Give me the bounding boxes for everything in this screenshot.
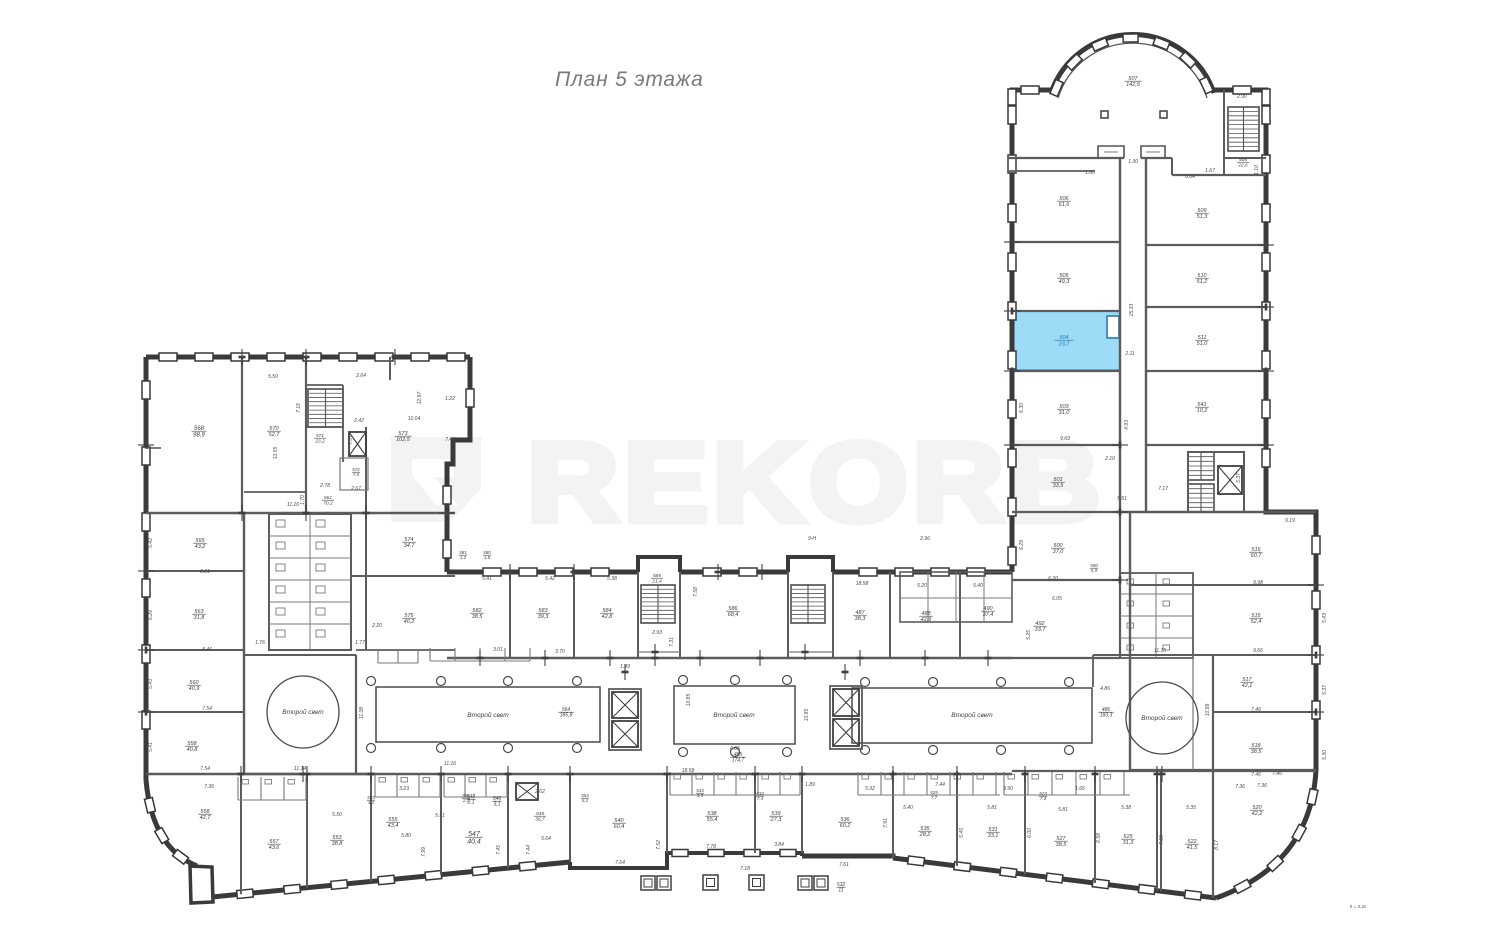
svg-text:9.69: 9.69 [1060, 436, 1070, 442]
svg-text:11: 11 [838, 888, 843, 894]
svg-text:40,9: 40,9 [189, 686, 200, 692]
svg-text:7.36: 7.36 [1257, 783, 1267, 789]
svg-text:7.91: 7.91 [883, 818, 889, 828]
svg-text:5.25: 5.25 [1026, 630, 1032, 640]
svg-text:42,8: 42,8 [602, 614, 614, 620]
svg-text:1.22: 1.22 [445, 396, 455, 402]
svg-text:38,8: 38,8 [332, 841, 344, 847]
svg-text:98,9: 98,9 [193, 433, 205, 439]
svg-text:10,2: 10,2 [1197, 408, 1208, 414]
svg-text:49,3: 49,3 [1059, 279, 1071, 285]
svg-text:7.44: 7.44 [526, 845, 532, 855]
svg-text:3,5: 3,5 [697, 793, 704, 798]
svg-text:7.16: 7.16 [296, 403, 302, 413]
svg-text:1.70: 1.70 [300, 495, 306, 505]
svg-text:27,3: 27,3 [770, 817, 783, 823]
svg-text:11.16: 11.16 [287, 502, 299, 508]
svg-text:2.62: 2.62 [534, 789, 545, 795]
svg-text:2.11: 2.11 [1124, 351, 1135, 357]
svg-text:1.49: 1.49 [620, 664, 630, 670]
svg-text:42,9: 42,9 [921, 617, 932, 623]
svg-text:38,5: 38,5 [1251, 749, 1263, 755]
svg-text:11.08: 11.08 [359, 707, 365, 719]
svg-text:33,1: 33,1 [988, 833, 999, 839]
svg-text:10.85: 10.85 [804, 709, 810, 722]
svg-text:7,7: 7,7 [931, 795, 938, 800]
svg-text:33,7: 33,7 [1035, 627, 1047, 633]
svg-text:1,8: 1,8 [484, 555, 491, 560]
svg-text:51,0: 51,0 [1197, 341, 1209, 347]
svg-text:51,2: 51,2 [1197, 279, 1208, 285]
svg-text:6.20: 6.20 [1048, 576, 1058, 582]
svg-text:5.81: 5.81 [987, 805, 997, 811]
svg-text:28,2: 28,2 [919, 832, 931, 838]
svg-text:18.58: 18.58 [856, 581, 869, 587]
svg-text:7.61: 7.61 [839, 862, 849, 868]
svg-text:1.77: 1.77 [355, 640, 365, 646]
svg-text:3.90: 3.90 [1003, 786, 1013, 792]
svg-text:42,7: 42,7 [200, 815, 212, 821]
svg-text:5.41: 5.41 [482, 576, 492, 582]
svg-text:5.50: 5.50 [332, 812, 342, 818]
svg-text:2.93: 2.93 [651, 630, 662, 636]
svg-text:7.44: 7.44 [445, 437, 455, 443]
svg-text:1.67: 1.67 [1205, 168, 1215, 174]
svg-text:6.29: 6.29 [1019, 540, 1025, 550]
svg-text:5.40: 5.40 [973, 583, 983, 589]
svg-text:31,3: 31,3 [1123, 840, 1135, 846]
svg-text:7.46: 7.46 [1251, 707, 1261, 713]
svg-text:185,8: 185,8 [560, 713, 573, 719]
svg-text:21,4: 21,4 [651, 578, 662, 584]
svg-text:5.38: 5.38 [1121, 805, 1131, 811]
svg-text:7.58: 7.58 [693, 587, 699, 597]
svg-text:1.89: 1.89 [805, 782, 815, 788]
svg-text:174,7: 174,7 [732, 758, 745, 764]
svg-text:7.54: 7.54 [200, 766, 210, 772]
svg-text:7.78: 7.78 [706, 844, 716, 850]
svg-text:6.29: 6.29 [148, 610, 154, 620]
svg-text:2.78: 2.78 [319, 483, 330, 489]
svg-text:5.43: 5.43 [148, 679, 154, 689]
svg-text:1,2: 1,2 [460, 555, 467, 560]
svg-text:9.66: 9.66 [1253, 648, 1263, 654]
svg-text:2.64: 2.64 [355, 373, 366, 379]
svg-text:39,3: 39,3 [538, 614, 550, 620]
svg-text:40,4: 40,4 [467, 839, 481, 846]
svg-text:7.17: 7.17 [1158, 486, 1168, 492]
svg-text:2.20: 2.20 [371, 623, 382, 629]
svg-text:3.01: 3.01 [493, 647, 503, 653]
svg-text:51,3: 51,3 [1197, 214, 1209, 220]
svg-text:42,2: 42,2 [1252, 811, 1263, 817]
svg-text:7.46: 7.46 [1272, 771, 1282, 777]
svg-text:18.58: 18.58 [682, 768, 695, 774]
svg-text:11.16: 11.16 [444, 761, 456, 767]
svg-text:7.45: 7.45 [496, 845, 502, 855]
svg-text:37,0: 37,0 [1053, 549, 1065, 555]
svg-text:6.05: 6.05 [1052, 596, 1062, 602]
svg-text:43,4: 43,4 [388, 823, 399, 829]
svg-text:41,5: 41,5 [1187, 845, 1199, 851]
svg-text:2.96: 2.96 [919, 536, 930, 542]
svg-text:3,1: 3,1 [494, 802, 501, 808]
svg-text:6.64: 6.64 [1185, 174, 1195, 180]
svg-text:3.84: 3.84 [774, 842, 784, 848]
svg-text:7.64: 7.64 [615, 860, 625, 866]
svg-text:9-Н: 9-Н [808, 536, 816, 542]
svg-text:61,6: 61,6 [1059, 202, 1071, 208]
svg-text:37,4: 37,4 [983, 612, 994, 618]
svg-text:36,7: 36,7 [535, 816, 545, 822]
svg-text:5.30: 5.30 [1322, 750, 1328, 760]
svg-text:REKORB: REKORB [527, 420, 1105, 545]
svg-text:23,2: 23,2 [314, 438, 325, 444]
svg-text:Второй свет: Второй свет [1141, 714, 1183, 722]
svg-text:183,3: 183,3 [1100, 713, 1113, 719]
svg-text:5.38: 5.38 [607, 576, 617, 582]
svg-text:7.52: 7.52 [656, 840, 662, 850]
svg-text:31,8: 31,8 [194, 615, 206, 621]
svg-text:22,6: 22,6 [1237, 162, 1248, 168]
svg-text:2.10: 2.10 [1104, 456, 1115, 462]
svg-text:1.66: 1.66 [1075, 786, 1085, 792]
svg-text:11.14: 11.14 [294, 766, 306, 772]
svg-text:70,2: 70,2 [323, 500, 333, 506]
svg-text:5.37: 5.37 [1322, 685, 1328, 695]
svg-text:142,5: 142,5 [1126, 82, 1141, 88]
svg-text:2.90: 2.90 [1236, 94, 1247, 100]
svg-text:12.97: 12.97 [417, 392, 423, 405]
svg-text:2,1: 2,1 [462, 798, 470, 803]
svg-text:7,3: 7,3 [1040, 796, 1047, 801]
svg-text:25.33: 25.33 [1129, 304, 1135, 318]
svg-text:5.50: 5.50 [268, 374, 278, 380]
svg-text:7.18: 7.18 [740, 866, 750, 872]
svg-text:43,2: 43,2 [195, 544, 206, 550]
svg-text:52,4: 52,4 [1251, 619, 1262, 625]
svg-text:10.85: 10.85 [686, 694, 692, 707]
svg-text:34,7: 34,7 [404, 543, 416, 549]
svg-text:7.35: 7.35 [1159, 835, 1165, 845]
svg-text:Второй свет: Второй свет [713, 711, 755, 719]
svg-text:7.36: 7.36 [204, 784, 214, 790]
svg-text:10.04: 10.04 [408, 416, 421, 422]
svg-text:40,2: 40,2 [404, 619, 415, 625]
svg-text:102,5: 102,5 [396, 437, 411, 443]
svg-text:5.42: 5.42 [545, 576, 555, 582]
svg-text:2.42: 2.42 [353, 418, 364, 424]
svg-text:7.44: 7.44 [935, 782, 945, 788]
svg-text:5.20: 5.20 [917, 583, 927, 589]
svg-text:5.92: 5.92 [865, 786, 875, 792]
svg-text:5,9: 5,9 [1091, 568, 1098, 573]
svg-text:9.98: 9.98 [1253, 580, 1263, 586]
svg-text:7.46: 7.46 [1251, 772, 1261, 778]
svg-text:5.42: 5.42 [148, 538, 154, 548]
svg-text:4.86: 4.86 [1100, 686, 1110, 692]
svg-text:8.46: 8.46 [202, 647, 212, 653]
svg-text:1.10: 1.10 [1254, 165, 1260, 175]
svg-text:43,6: 43,6 [269, 845, 281, 851]
svg-text:1.80: 1.80 [1085, 170, 1095, 176]
svg-text:3,2: 3,2 [368, 800, 375, 805]
svg-text:60,4: 60,4 [614, 824, 625, 830]
svg-text:6.58: 6.58 [1096, 833, 1102, 843]
svg-text:31,0: 31,0 [1059, 410, 1071, 416]
svg-text:1.76: 1.76 [255, 640, 265, 646]
svg-text:7.31: 7.31 [669, 637, 675, 647]
svg-text:7.57: 7.57 [348, 435, 354, 445]
svg-text:1.30: 1.30 [1128, 159, 1138, 165]
svg-text:5.81: 5.81 [1058, 807, 1068, 813]
svg-text:55,4: 55,4 [707, 817, 718, 823]
svg-text:5,1: 5,1 [582, 798, 589, 803]
svg-text:6.00: 6.00 [1027, 828, 1033, 838]
svg-text:5.37: 5.37 [1236, 473, 1242, 483]
svg-text:10.55: 10.55 [273, 447, 279, 460]
svg-text:7.36: 7.36 [1235, 784, 1245, 790]
svg-text:8.17: 8.17 [1214, 840, 1220, 850]
svg-text:33,5: 33,5 [1053, 483, 1065, 489]
svg-text:Второй свет: Второй свет [951, 711, 993, 719]
svg-text:52,7: 52,7 [269, 432, 281, 438]
svg-text:5.64: 5.64 [541, 836, 551, 842]
svg-text:План 5 этажа: План 5 этажа [555, 68, 704, 91]
svg-text:40,8: 40,8 [187, 747, 199, 753]
svg-text:5.41: 5.41 [148, 742, 154, 752]
svg-text:2.67: 2.67 [350, 486, 361, 492]
svg-text:Второй свет: Второй свет [282, 708, 324, 716]
svg-text:h = 3.31: h = 3.31 [1350, 904, 1367, 909]
svg-text:5.80: 5.80 [401, 833, 411, 839]
svg-text:4.93: 4.93 [1124, 420, 1130, 430]
svg-text:5.45: 5.45 [959, 828, 965, 838]
svg-text:60,7: 60,7 [1251, 553, 1263, 559]
svg-text:5.43: 5.43 [1322, 613, 1328, 623]
svg-text:5.40: 5.40 [903, 805, 913, 811]
svg-text:5.51: 5.51 [1117, 496, 1127, 502]
svg-text:38,5: 38,5 [472, 614, 484, 620]
svg-text:7,4: 7,4 [757, 796, 764, 801]
svg-text:42,1: 42,1 [1242, 683, 1253, 689]
svg-text:6.30: 6.30 [1019, 403, 1025, 413]
svg-text:Второй свет: Второй свет [467, 711, 509, 719]
svg-text:68,4: 68,4 [728, 612, 739, 618]
svg-text:23,7: 23,7 [1058, 342, 1071, 348]
svg-text:38,5: 38,5 [1056, 842, 1068, 848]
svg-text:3.70: 3.70 [555, 649, 565, 655]
svg-text:9.19: 9.19 [1285, 518, 1295, 524]
svg-text:60,2: 60,2 [840, 823, 851, 829]
svg-text:3.23: 3.23 [399, 786, 409, 792]
svg-text:38,3: 38,3 [855, 616, 867, 622]
svg-text:10.99: 10.99 [1205, 704, 1211, 717]
svg-text:8.21: 8.21 [200, 569, 210, 575]
svg-text:7.99: 7.99 [421, 847, 427, 857]
svg-text:5.35: 5.35 [1186, 805, 1196, 811]
svg-text:5.51: 5.51 [435, 813, 445, 819]
svg-text:7.54: 7.54 [202, 706, 212, 712]
svg-text:7,0: 7,0 [353, 472, 360, 477]
svg-text:11.15: 11.15 [1154, 648, 1166, 654]
svg-text:6.85: 6.85 [730, 746, 740, 752]
